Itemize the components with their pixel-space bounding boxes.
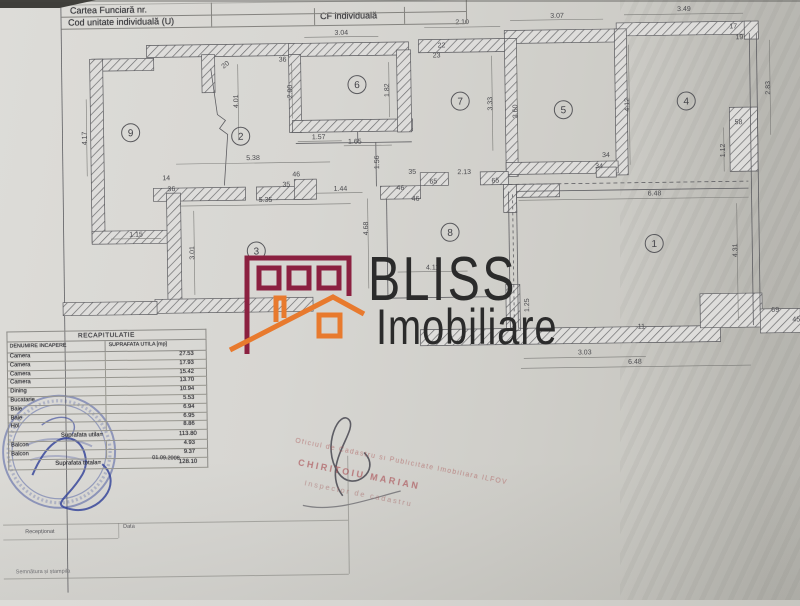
- room-name-cell: Hol: [9, 422, 107, 431]
- received-label: Recepționat: [25, 529, 54, 535]
- dimension-label: 35: [408, 169, 416, 176]
- dimension-label: 35: [282, 182, 290, 189]
- room-area-cell: 8.86: [107, 421, 207, 430]
- dimension-label: 45: [792, 316, 800, 323]
- svg-text:1: 1: [651, 239, 657, 250]
- signature-label: Semnătura și ștampila: [16, 569, 71, 576]
- dimension-label: 4.31: [732, 243, 739, 257]
- svg-text:8: 8: [447, 228, 453, 239]
- room-number: 4: [677, 92, 695, 110]
- dimension-label: 20: [221, 60, 232, 70]
- room-number: 2: [232, 127, 250, 145]
- dimension-label: 65: [491, 178, 499, 185]
- room-name-cell: Balcon: [9, 450, 107, 459]
- room-number: 7: [451, 92, 469, 110]
- dimension-label: 4.17: [82, 131, 89, 145]
- svg-text:6: 6: [354, 80, 360, 91]
- dimension-label: 36: [279, 57, 287, 64]
- recap-col1-header: DENUMIRE INCAPERE: [8, 341, 106, 352]
- subtotal-label: Suprafata utila=: [61, 432, 103, 439]
- room-area-cell: 27.53: [106, 351, 206, 360]
- svg-text:9: 9: [128, 128, 134, 139]
- svg-text:2: 2: [238, 132, 244, 143]
- recap-date: 01.09.2008: [152, 455, 180, 462]
- dimension-label: 2.13: [457, 169, 471, 176]
- room-area-cell: 6.94: [106, 403, 206, 412]
- dimension-label: 14: [162, 175, 170, 182]
- dimension-label: 1.25: [524, 298, 531, 312]
- dimension-label: 1.15: [129, 232, 143, 239]
- dimension-label: 4.11: [426, 264, 439, 271]
- dimension-label: 6.48: [648, 190, 662, 197]
- unit-code-label: Cod unitate individuală (U): [68, 16, 174, 27]
- room-name-cell: Camera: [8, 361, 106, 370]
- dimension-label: 1.57: [312, 134, 326, 141]
- dimension-label: 69: [771, 307, 779, 314]
- dimension-label: 1.44: [334, 186, 348, 193]
- room-number: 5: [554, 101, 572, 119]
- land-book-label: Cartea Funciară nr.: [70, 5, 147, 16]
- dimension-label: 4.12: [624, 98, 631, 112]
- dimension-label: 1.12: [720, 144, 727, 158]
- dimension-label: 3.60: [512, 104, 519, 118]
- dimension-label: 19: [735, 34, 743, 41]
- dimension-label: 36: [167, 186, 175, 193]
- room-number: 1: [645, 234, 663, 252]
- room-number: 3: [247, 242, 265, 260]
- svg-text:4: 4: [683, 96, 689, 107]
- dimension-label: 11: [638, 324, 645, 331]
- dimension-label: 4.68: [363, 221, 370, 235]
- floor-plan-drawing: 3.042.103.073.493620222317191.822.004.01…: [0, 0, 800, 606]
- dimension-label: 34: [602, 152, 610, 159]
- room-area-cell: 4.93: [107, 440, 207, 449]
- dimension-label: 3.03: [578, 349, 592, 356]
- room-number: 9: [122, 124, 140, 142]
- recap-rows: Camera27.53Camera17.93Camera15.42Camera1…: [7, 351, 208, 433]
- room-area-cell: 13.70: [106, 377, 206, 386]
- total-label: Suprafata totala=: [55, 460, 101, 467]
- total-value: 128.10: [179, 459, 197, 465]
- room-name-cell: Dining: [8, 387, 106, 396]
- subtotal-value: 113.80: [179, 431, 197, 437]
- dimension-label: 65: [429, 178, 437, 185]
- recap-col2-header: SUPRAFATA UTILA [mp]: [106, 340, 206, 351]
- dimension-label: 1.82: [384, 83, 391, 97]
- dimension-label: 2.83: [765, 81, 772, 95]
- room-number: 6: [348, 75, 366, 93]
- room-name-cell: Baie: [8, 405, 106, 414]
- photo-top-edge: [0, 0, 800, 2]
- svg-text:5: 5: [561, 105, 567, 116]
- photographed-floor-plan-document: { "header": { "row1_label": "Cartea Func…: [0, 0, 800, 600]
- svg-text:3: 3: [253, 246, 259, 257]
- svg-text:7: 7: [457, 97, 463, 108]
- dimension-label: 3.33: [487, 97, 494, 111]
- dimension-label: 46: [396, 185, 404, 192]
- room-name-cell: Balcon: [9, 441, 107, 450]
- date-label: Data: [123, 524, 135, 530]
- dimension-label: 4.01: [233, 94, 240, 108]
- room-name-cell: Camera: [8, 352, 106, 361]
- room-area-cell: 10.94: [106, 386, 206, 395]
- dimension-label: 3.01: [189, 246, 196, 260]
- dimension-label: 5.35: [259, 197, 273, 204]
- dimension-label: 46: [292, 171, 300, 178]
- room-name-cell: Camera: [8, 379, 106, 388]
- dimension-label: 6.48: [628, 359, 642, 366]
- recap-table: RECAPITULATIE DENUMIRE INCAPERE SUPRAFAT…: [6, 329, 208, 471]
- dimension-label: 1.56: [374, 155, 381, 169]
- dimension-label: 2.00: [287, 85, 294, 99]
- dimension-label: 1.65: [348, 139, 362, 146]
- room-area-cell: 17.93: [106, 360, 206, 369]
- room-area-cell: 5.53: [106, 395, 206, 404]
- dimension-label: 34: [595, 163, 603, 170]
- dimension-label: 58: [735, 119, 743, 126]
- room-number: 8: [441, 223, 459, 241]
- dimension-label: 5.38: [246, 155, 260, 162]
- document-paper: 3.042.103.073.493620222317191.822.004.01…: [0, 0, 800, 606]
- room-name-cell: Camera: [8, 370, 106, 379]
- dimension-label: 46: [412, 196, 420, 203]
- dimension-label: 22: [438, 42, 446, 49]
- room-name-cell: Baie: [9, 414, 107, 423]
- room-name-cell: Bucatarie: [8, 396, 106, 405]
- dimension-label: 23: [433, 52, 441, 59]
